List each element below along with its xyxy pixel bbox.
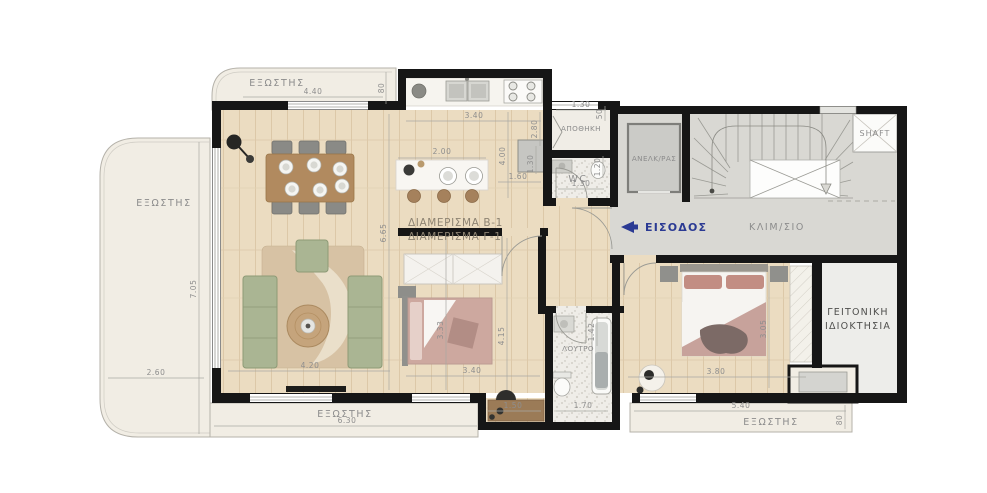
tv-console bbox=[286, 386, 346, 392]
dim-bedroom1-w: 3.33 bbox=[436, 321, 445, 340]
label-neighbor-line1: ΓΕΙΤΟΝΙΚΗ bbox=[827, 307, 888, 318]
armchair bbox=[296, 240, 328, 272]
dim-kitchen-counter: 3.40 bbox=[465, 111, 484, 120]
dim-balcony-left-len: 7.05 bbox=[189, 280, 198, 299]
kitchen-island bbox=[396, 160, 488, 203]
dim-living-len: 6.65 bbox=[379, 224, 388, 243]
label-entrance: ΕΙΣΟΔΟΣ bbox=[645, 221, 707, 234]
label-balcony-left: ΕΞΩΣΤΗΣ bbox=[136, 198, 191, 209]
dim-storage-d: 50 bbox=[595, 109, 604, 120]
dim-bedroom2-w: 3.80 bbox=[707, 367, 726, 376]
dim-bedroom1-w2: 3.40 bbox=[463, 366, 482, 375]
floor-plan: 4.40 80 3.40 2.80 1.30 50 2.00 4.00 1.60… bbox=[0, 0, 987, 493]
dim-balcony-left-w: 2.60 bbox=[147, 368, 166, 377]
label-bathroom: ΛΟΥΤΡΟ bbox=[562, 344, 594, 353]
dim-balcony-top-w: 4.40 bbox=[304, 87, 323, 96]
dim-island-w: 2.00 bbox=[433, 147, 452, 156]
dim-wc-d: 1.20 bbox=[593, 158, 602, 177]
dim-island-aisle: 1.60 bbox=[509, 172, 528, 181]
dining-set bbox=[266, 141, 354, 214]
bathroom-sink bbox=[554, 316, 574, 332]
label-apartment-b: ΔΙΑΜΕΡΙΣΜΑ Β-1 bbox=[408, 217, 503, 229]
label-stairs: ΚΛΙΜ/ΣΙΟ bbox=[749, 222, 805, 233]
sofa-left bbox=[243, 276, 277, 368]
label-apartment-c: ΔΙΑΜΕΡΙΣΜΑ Γ-1 bbox=[408, 231, 502, 243]
dim-nook-w: 1.50 bbox=[504, 401, 523, 410]
dim-bedroom2-d: 3.05 bbox=[759, 320, 768, 339]
dim-storage-w: 1.30 bbox=[572, 100, 591, 109]
dim-living-w: 4.20 bbox=[301, 361, 320, 370]
label-shaft: SHAFT bbox=[860, 129, 891, 138]
label-wc: WC bbox=[568, 174, 587, 185]
coffee-table bbox=[287, 305, 329, 347]
dim-fridge-w: 1.30 bbox=[526, 155, 535, 174]
label-balcony-bottom-right: ΕΞΩΣΤΗΣ bbox=[743, 417, 798, 428]
label-elevator: ΑΝΕΛΚ/ΡΑΣ bbox=[632, 154, 676, 163]
dim-balcony-br-len: 5.40 bbox=[732, 401, 751, 410]
label-balcony-top: ΕΞΩΣΤΗΣ bbox=[249, 78, 304, 89]
bedroom1-wardrobe bbox=[404, 254, 502, 284]
dim-bath-w: 1.70 bbox=[574, 401, 593, 410]
label-balcony-bottom: ΕΞΩΣΤΗΣ bbox=[317, 409, 372, 420]
dim-bath-d: 1.42 bbox=[587, 323, 596, 342]
sofa-right bbox=[348, 276, 382, 368]
dim-kitchen-len: 4.00 bbox=[498, 147, 507, 166]
label-storage: ΑΠΟΘΗΚΗ bbox=[561, 124, 601, 133]
dim-kitchen-depth: 2.80 bbox=[530, 120, 539, 139]
label-neighbor-line2: ΙΔΙΟΚΤΗΣΙΑ bbox=[825, 321, 891, 332]
dim-balcony-top-d: 80 bbox=[377, 83, 386, 94]
bedroom2-closet bbox=[790, 266, 812, 362]
floor-plan-svg: 4.40 80 3.40 2.80 1.30 50 2.00 4.00 1.60… bbox=[0, 0, 987, 493]
entrance-marker: ΕΙΣΟΔΟΣ bbox=[621, 221, 707, 234]
bedroom1-bed bbox=[398, 286, 492, 366]
bathroom-toilet bbox=[553, 372, 571, 396]
dim-bedroom1-len: 4.15 bbox=[497, 327, 506, 346]
dim-balcony-br-d: 80 bbox=[835, 415, 844, 426]
